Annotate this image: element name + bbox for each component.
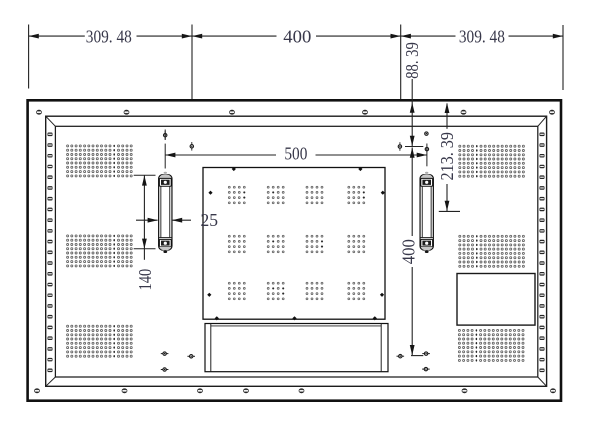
svg-text:140: 140 [135, 269, 155, 291]
svg-text:25: 25 [200, 210, 218, 230]
svg-text:213. 39: 213. 39 [437, 132, 457, 181]
svg-text:400: 400 [399, 239, 419, 264]
svg-text:500: 500 [284, 144, 307, 164]
svg-text:309. 48: 309. 48 [459, 27, 505, 47]
svg-text:309. 48: 309. 48 [86, 27, 132, 47]
svg-text:88. 39: 88. 39 [402, 42, 422, 79]
svg-text:400: 400 [283, 27, 311, 47]
